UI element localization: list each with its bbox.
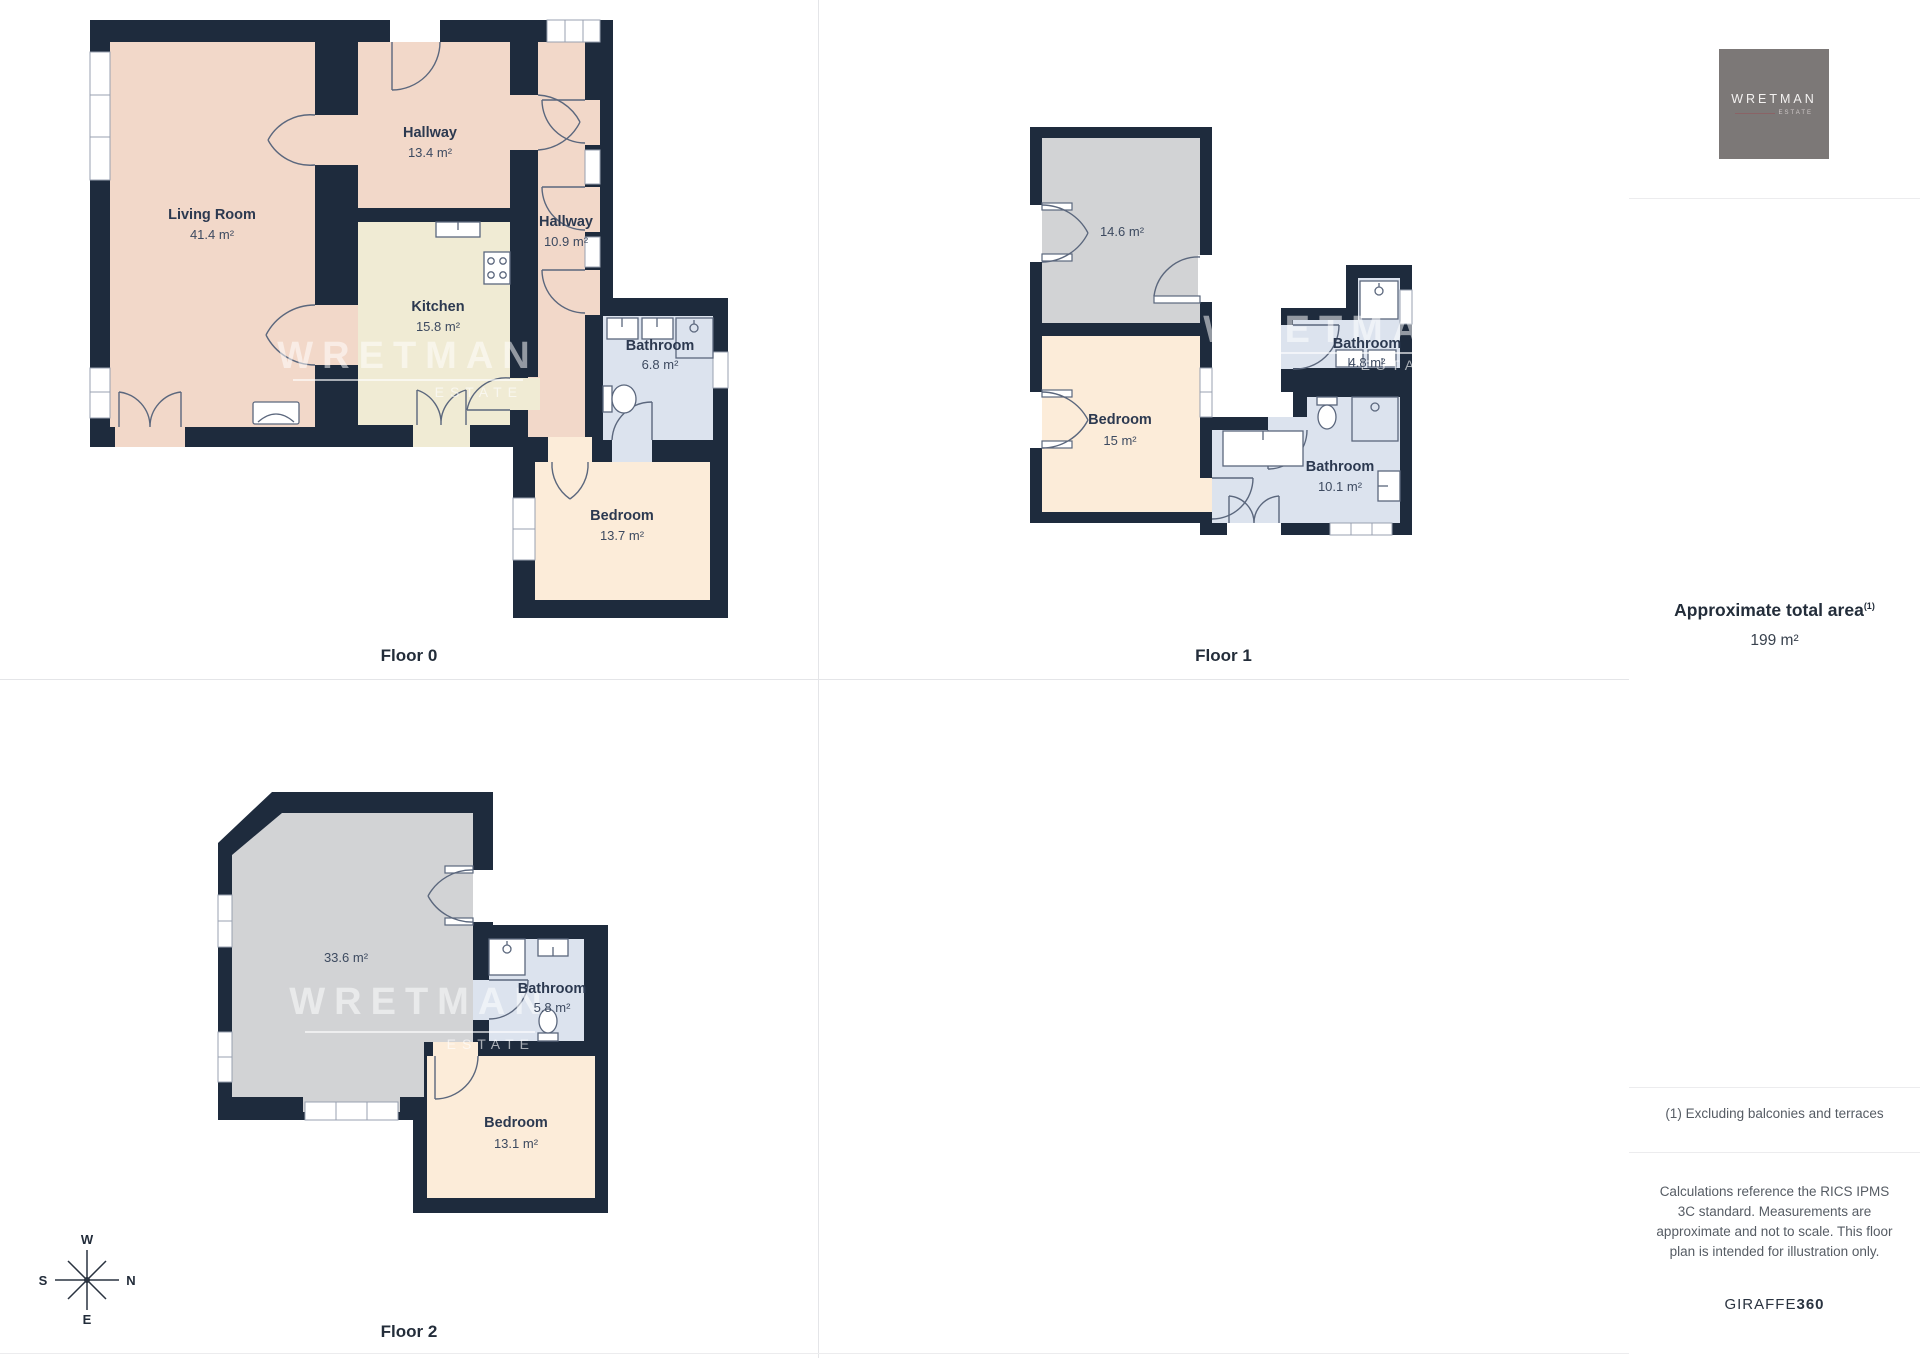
room-label-name: Living Room [168, 207, 256, 223]
room-label-area: 33.6 m² [324, 950, 369, 965]
toilet-symbol [1317, 397, 1337, 429]
disclaimer-text: Calculations reference the RICS IPMS 3C … [1655, 1182, 1894, 1262]
total-area-footnote-marker: (1) [1864, 601, 1875, 611]
svg-text:WRETMAN: WRETMAN [277, 335, 538, 377]
floor1-label: Floor 1 [818, 646, 1629, 666]
room-label-area: 10.1 m² [1318, 479, 1363, 494]
compass-south: S [39, 1273, 48, 1288]
counter-symbol [436, 222, 480, 237]
toilet-symbol [603, 385, 636, 413]
svg-text:WRETMAN: WRETMAN [289, 981, 550, 1023]
sidebar-divider [1629, 198, 1920, 199]
room-label-area: 10.9 m² [544, 234, 589, 249]
svg-text:ESTATE: ESTATE [447, 1036, 535, 1052]
room-label-area: 15 m² [1103, 433, 1137, 448]
brand-logo-line [1735, 113, 1775, 114]
room-label-name: Hallway [403, 125, 457, 141]
sidebar-divider [1629, 1087, 1920, 1088]
room-label-area: 13.1 m² [494, 1136, 539, 1151]
floor1-plan: WRETMAN ESTATE 14.6 m² Bedroom 15 m² Bat… [818, 0, 1629, 679]
sink-symbol [253, 402, 299, 424]
compass: W E N S [35, 1233, 139, 1327]
room-label-area: 15.8 m² [416, 319, 461, 334]
total-area-label: Approximate total area(1) [1629, 600, 1920, 621]
floor0-label: Floor 0 [0, 646, 818, 666]
room-label-name: Bathroom [518, 981, 586, 997]
room-label-name: Bathroom [626, 338, 694, 354]
total-area-block: Approximate total area(1) 199 m² [1629, 600, 1920, 650]
svg-text:ESTATE: ESTATE [435, 384, 523, 400]
room-label-area: 13.4 m² [408, 145, 453, 160]
sidebar-divider [1629, 1152, 1920, 1153]
room-label-name: Bedroom [1088, 412, 1152, 428]
footnote-text: (1) Excluding balconies and terraces [1639, 1106, 1910, 1121]
room-label-name: Bedroom [590, 508, 654, 524]
brand-logo-text: WRETMAN [1731, 92, 1817, 106]
total-area-value: 199 m² [1629, 632, 1920, 650]
room-label-name: Hallway [539, 214, 593, 230]
giraffe360-credit: GIRAFFE360 [1629, 1296, 1920, 1313]
stove-symbol [484, 252, 510, 284]
room-label-name: Bedroom [484, 1115, 548, 1131]
brand-logo: WRETMAN ESTATE [1719, 49, 1829, 159]
room-label-area: 13.7 m² [600, 528, 645, 543]
room-label-area: 5.8 m² [534, 1000, 572, 1015]
room-label-name: Bathroom [1333, 336, 1401, 352]
room-label-name: Kitchen [411, 299, 464, 315]
compass-west: W [81, 1233, 94, 1247]
room-label-name: Bathroom [1306, 459, 1374, 475]
sidebar: WRETMAN ESTATE Approximate total area(1)… [1629, 0, 1920, 1358]
room-label-area: 14.6 m² [1100, 224, 1145, 239]
compass-north: N [126, 1273, 135, 1288]
floorplan-page: WRETMAN ESTATE Living Room 41.4 m² Hallw… [0, 0, 1920, 1358]
room-label-area: 6.8 m² [642, 357, 680, 372]
floor2-label: Floor 2 [0, 1322, 818, 1342]
room-label-area: 4.8 m² [1349, 355, 1387, 370]
floor0-plan: WRETMAN ESTATE Living Room 41.4 m² Hallw… [0, 0, 818, 679]
brand-logo-subtext: ESTATE [1779, 110, 1813, 116]
bathroom-sink-symbol [538, 939, 568, 956]
room-label-area: 41.4 m² [190, 227, 235, 242]
closet-symbol [1223, 431, 1303, 466]
shower-symbol [489, 939, 525, 975]
